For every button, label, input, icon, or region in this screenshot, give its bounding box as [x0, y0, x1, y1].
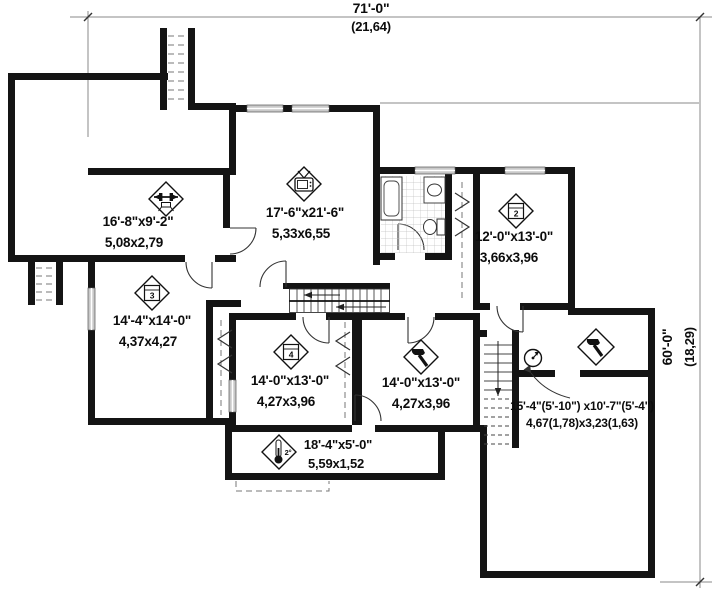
exercise-room-size-m: 5,08x2,79 [105, 235, 163, 250]
height-dimension: 60'-0" [659, 329, 675, 366]
family-room-size-m: 5,33x6,55 [272, 226, 331, 241]
bedroom-3-size-m: 4,37x4,27 [119, 334, 177, 349]
exercise-icon [149, 182, 183, 216]
window [292, 105, 329, 112]
window-well-dashes [36, 268, 56, 300]
bed-icon: 3 [135, 276, 169, 310]
bathtub [381, 177, 402, 220]
door [303, 317, 329, 343]
bedroom-4-size: 14'-0"x13'-0" [251, 373, 329, 388]
cold-room-well-dashes [236, 481, 329, 491]
family-room-size: 17'-6"x21'-6" [266, 205, 344, 220]
basement-floor-plan: 71'-0" (21,64) 60'-0" (18,29) [0, 0, 720, 590]
bed-icon: 2 [499, 194, 533, 228]
bedroom4-closet [336, 322, 350, 420]
width-dimension-metric: (21,64) [351, 19, 391, 34]
door [186, 262, 212, 288]
basement-staircase [484, 341, 512, 444]
leader-arrow [523, 365, 570, 398]
bedroom-2-size: 12'-0"x13'-0" [475, 229, 553, 244]
hammer-icon [578, 329, 614, 365]
gauge-icon [525, 350, 542, 367]
bedroom-2-number: 2 [514, 209, 519, 219]
window [88, 288, 95, 330]
door [230, 228, 256, 254]
storage-size-m: 4,67(1,78)x3,23(1,63) [526, 416, 638, 430]
bedroom-4-size-m: 4,27x3,96 [257, 394, 316, 409]
workshop-size-m: 4,27x3,96 [392, 396, 451, 411]
bed-icon: 4 [274, 335, 308, 369]
floor-plan-page: 71'-0" (21,64) 60'-0" (18,29) [0, 0, 720, 590]
window [415, 167, 455, 174]
window [247, 105, 283, 112]
tv-icon [287, 167, 321, 201]
storage-size: 15'-4"(5'-10") x10'-7"(5'-4") [510, 399, 654, 413]
bathroom [381, 176, 445, 253]
width-dimension: 71'-0" [353, 0, 390, 16]
bedroom-2-size-m: 3,66x3,96 [480, 250, 539, 265]
cold-room-size: 18'-4"x5'-0" [304, 437, 372, 452]
toilet [424, 219, 446, 235]
bedroom-3-number: 3 [150, 291, 155, 301]
workshop-size: 14'-0"x13'-0" [382, 375, 460, 390]
hall-closet [455, 182, 469, 298]
door [260, 261, 286, 287]
window [505, 167, 545, 174]
thermometer-icon: 2° [262, 435, 296, 469]
door [497, 306, 523, 332]
vanity-sink [424, 177, 445, 203]
hammer-icon [404, 340, 438, 374]
cold-room-temp: 2° [285, 448, 292, 457]
exercise-room-size: 16'-8"x9'-2" [103, 214, 174, 229]
central-staircase [289, 289, 390, 313]
chimney-stair-dashes [168, 36, 188, 99]
cold-room-size-m: 5,59x1,52 [308, 456, 364, 471]
height-dimension-metric: (18,29) [682, 327, 697, 367]
bedroom-4-number: 4 [289, 350, 294, 360]
bedroom-3-size: 14'-4"x14'-0" [113, 313, 191, 328]
window [229, 380, 236, 412]
